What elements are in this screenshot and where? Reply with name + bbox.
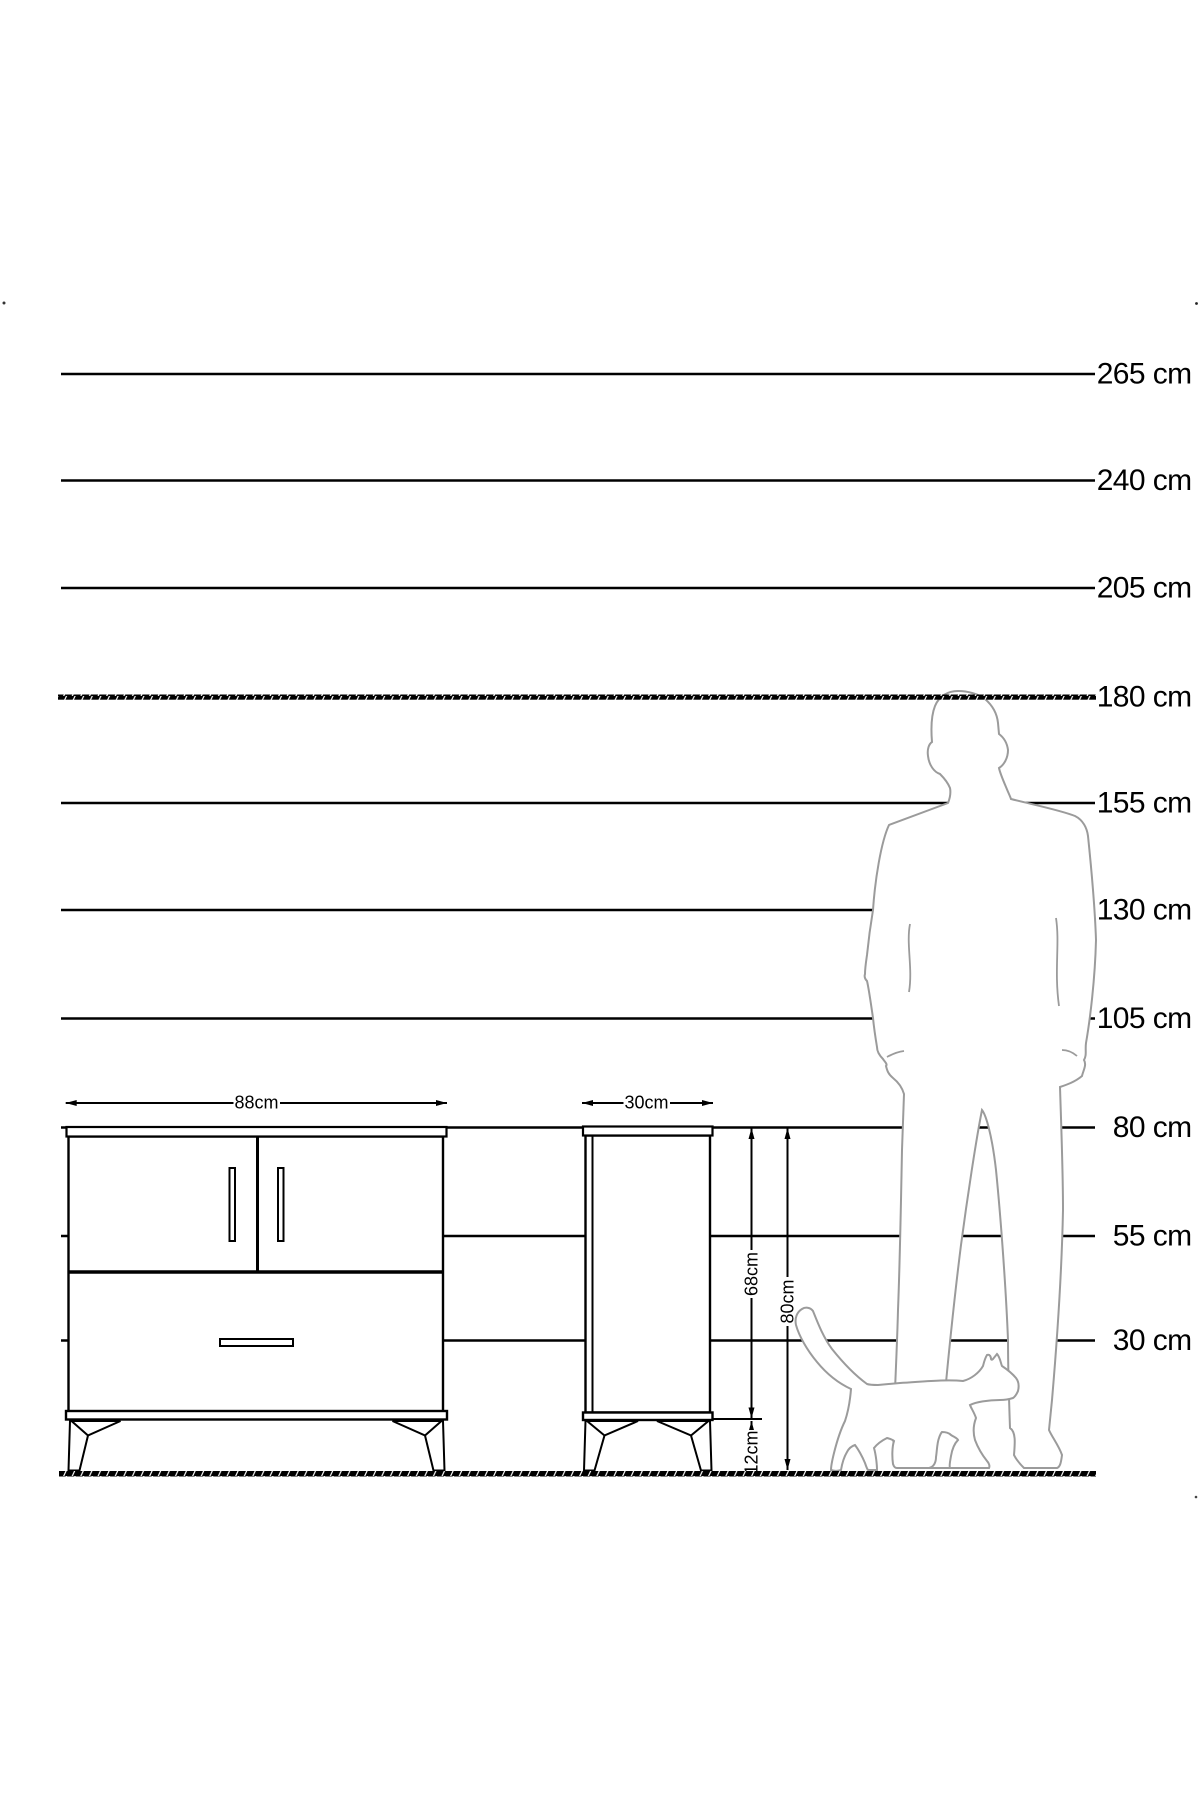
svg-text:12cm: 12cm xyxy=(742,1430,762,1474)
svg-text:80 cm: 80 cm xyxy=(1113,1111,1192,1144)
svg-text:30 cm: 30 cm xyxy=(1113,1324,1192,1357)
svg-text:55 cm: 55 cm xyxy=(1113,1220,1192,1253)
svg-text:80cm: 80cm xyxy=(778,1279,798,1323)
svg-text:88cm: 88cm xyxy=(234,1093,278,1113)
svg-text:105 cm: 105 cm xyxy=(1097,1002,1192,1035)
svg-text:205 cm: 205 cm xyxy=(1097,572,1192,605)
svg-text:265 cm: 265 cm xyxy=(1097,358,1192,391)
svg-text:155 cm: 155 cm xyxy=(1097,787,1192,820)
svg-text:180 cm: 180 cm xyxy=(1097,681,1192,714)
svg-text:68cm: 68cm xyxy=(742,1252,762,1296)
svg-text:30cm: 30cm xyxy=(624,1093,668,1113)
svg-text:240 cm: 240 cm xyxy=(1097,464,1192,497)
svg-text:130 cm: 130 cm xyxy=(1097,894,1192,927)
